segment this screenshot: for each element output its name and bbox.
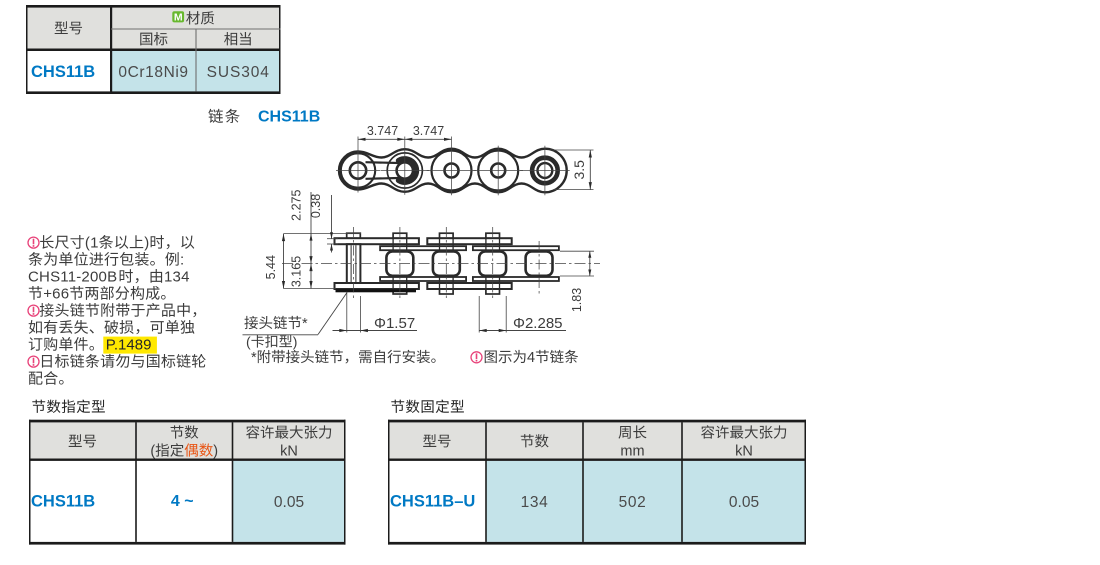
svg-text:0.05: 0.05 — [729, 494, 759, 511]
svg-text:(: ( — [150, 444, 155, 460]
svg-text:*: * — [251, 350, 257, 366]
svg-text:3.747: 3.747 — [367, 124, 398, 138]
svg-text:): ) — [293, 334, 298, 350]
svg-text:): ) — [144, 235, 149, 252]
svg-text:*: * — [302, 316, 308, 332]
svg-text:CHS11-200B: CHS11-200B — [28, 269, 117, 286]
svg-text:3.165: 3.165 — [290, 256, 304, 287]
svg-text:CHS11B: CHS11B — [31, 63, 95, 81]
svg-text:+66: +66 — [43, 286, 69, 303]
svg-text:3.747: 3.747 — [413, 124, 444, 138]
svg-text:502: 502 — [619, 494, 647, 511]
svg-text:134: 134 — [164, 269, 190, 286]
svg-text:0.38: 0.38 — [309, 194, 323, 218]
svg-text:0.05: 0.05 — [274, 494, 304, 511]
svg-text:M: M — [174, 12, 183, 24]
svg-text:(: ( — [246, 334, 251, 350]
svg-text:CHS11B: CHS11B — [258, 109, 320, 126]
svg-text:P.1489: P.1489 — [106, 337, 152, 354]
svg-text:1.83: 1.83 — [570, 288, 584, 312]
svg-text:2.275: 2.275 — [290, 190, 304, 221]
svg-text:): ) — [213, 444, 218, 460]
svg-text:3.5: 3.5 — [571, 160, 587, 180]
svg-text:Φ2.285: Φ2.285 — [513, 315, 563, 332]
svg-text:Φ1.57: Φ1.57 — [374, 315, 415, 332]
svg-text:4: 4 — [527, 350, 535, 366]
svg-text:CHS11B: CHS11B — [31, 493, 95, 511]
svg-text:0Cr18Ni9: 0Cr18Ni9 — [118, 64, 188, 81]
svg-text:CHS11B–U: CHS11B–U — [390, 493, 475, 511]
svg-text:(1: (1 — [85, 235, 99, 252]
svg-text:134: 134 — [521, 494, 549, 511]
svg-text:mm: mm — [620, 444, 644, 460]
svg-text:5.44: 5.44 — [264, 255, 278, 279]
svg-text:kN: kN — [735, 444, 753, 460]
svg-text:kN: kN — [280, 444, 298, 460]
svg-text:4 ~: 4 ~ — [171, 493, 194, 510]
svg-text::: : — [180, 252, 184, 269]
svg-text:SUS304: SUS304 — [207, 64, 270, 81]
